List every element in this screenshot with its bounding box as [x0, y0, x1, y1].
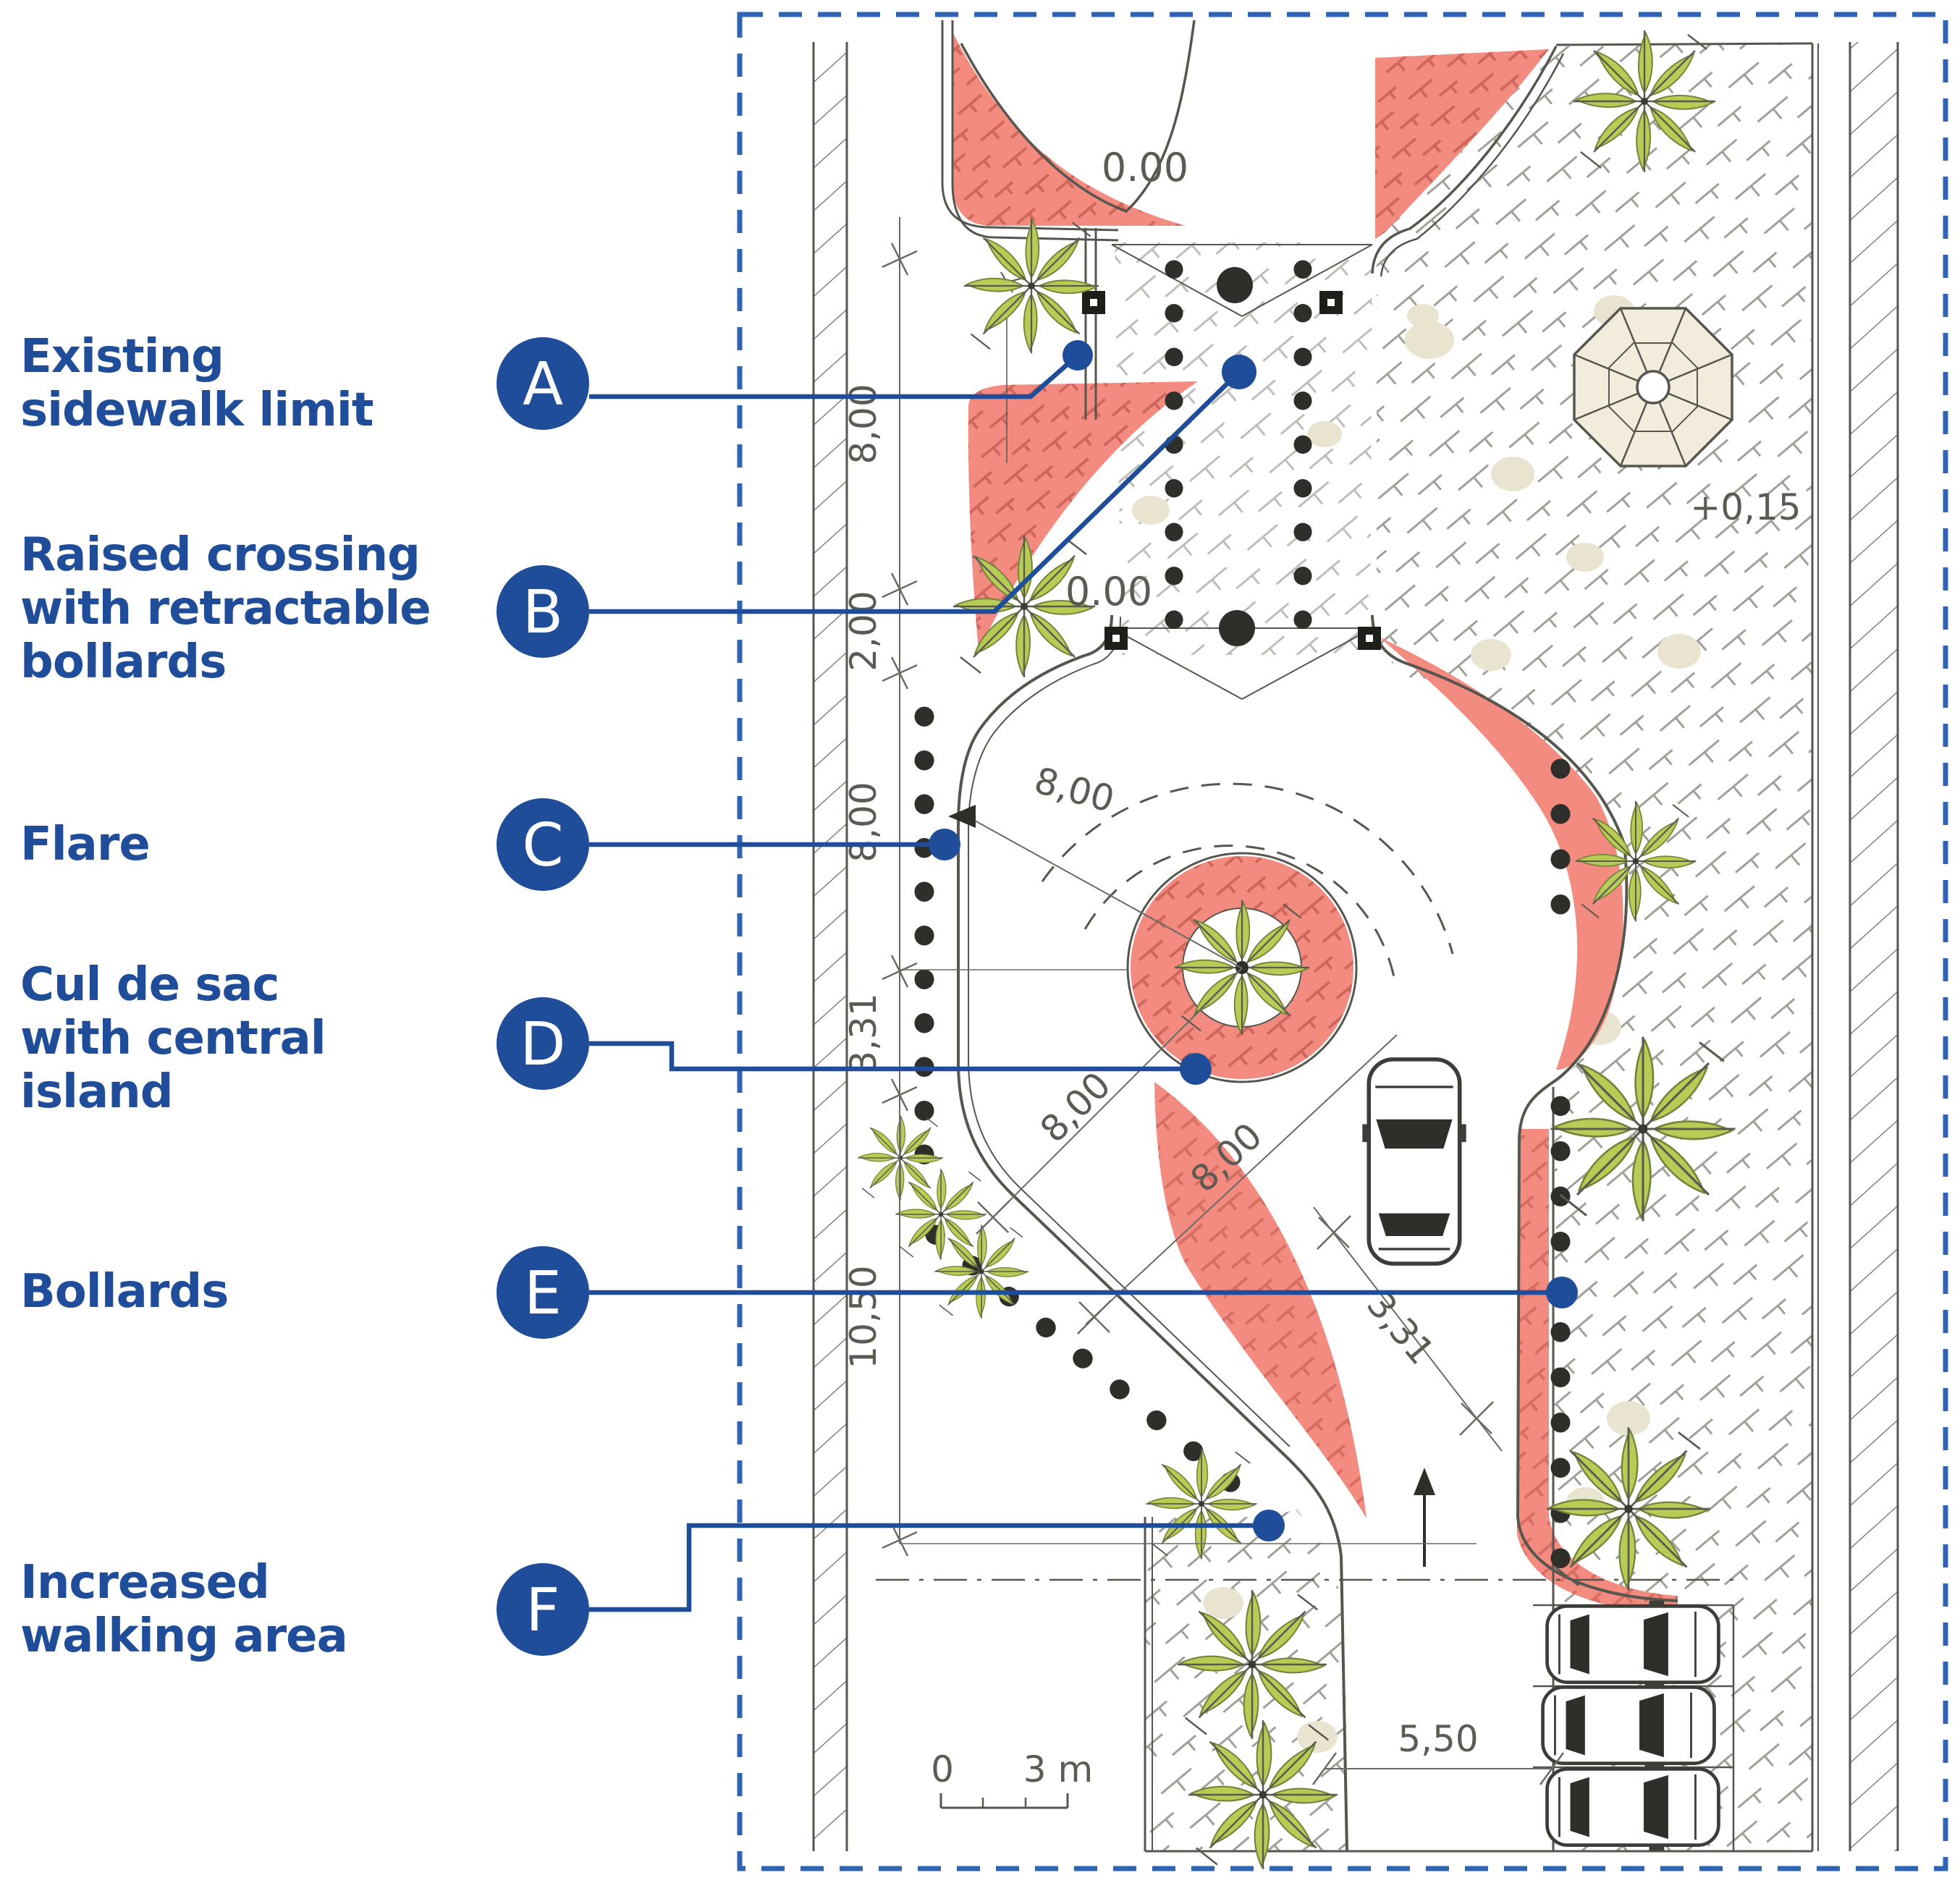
site-plan: 0.00 0.00 +0,15 8,00 2,00 8,00 3,31 10,5…: [0, 0, 1960, 1891]
west-wall-hatch: [814, 42, 847, 1851]
tree-icon: [1188, 1720, 1338, 1869]
tree-icon: [1146, 1449, 1257, 1560]
badge-e: E: [497, 1246, 589, 1339]
scale-zero: 0: [931, 1748, 954, 1790]
leader-dot-d: [1180, 1053, 1212, 1085]
parked-car-icon: [1547, 1764, 1719, 1850]
dim-left-331: 3,31: [842, 993, 884, 1073]
svg-text:F: F: [525, 1576, 559, 1645]
badge-b: B: [497, 565, 589, 658]
figure-canvas: Existing sidewalk limit Raised crossing …: [0, 0, 1960, 1891]
dim-parking-length: 5,50: [1398, 1718, 1478, 1760]
leader-dot-f: [1253, 1510, 1285, 1541]
parked-car-icon: [1547, 1601, 1719, 1688]
leader-dot-a: [1063, 340, 1093, 371]
large-bollard-bottom: [1219, 610, 1255, 646]
tree-icon: [1547, 1427, 1710, 1590]
dim-left-2: 2,00: [842, 591, 884, 671]
dim-left-1050: 10,50: [842, 1265, 884, 1368]
tree-icon: [895, 1169, 986, 1259]
svg-text:E: E: [524, 1259, 562, 1328]
parked-car-icon: [1543, 1682, 1715, 1769]
tree-icon: [1574, 30, 1715, 172]
svg-text:A: A: [523, 350, 563, 419]
badge-c: C: [497, 798, 589, 891]
badge-f: F: [497, 1563, 589, 1656]
svg-text:D: D: [520, 1010, 565, 1079]
svg-text:B: B: [523, 578, 563, 647]
badge-a: A: [497, 337, 589, 430]
tree-icon: [964, 219, 1099, 353]
leader-dot-e: [1546, 1277, 1578, 1308]
svg-text:C: C: [522, 811, 563, 880]
east-wall-hatch: [1850, 42, 1898, 1851]
tree-icon: [1576, 801, 1697, 922]
leader-dot-c: [929, 829, 960, 860]
annotation-badges: A B C D E F: [497, 337, 589, 1656]
level-top-street: 0.00: [1102, 145, 1188, 190]
level-right-sidewalk: +0,15: [1690, 486, 1801, 528]
large-bollard-top: [1217, 267, 1253, 303]
tree-icon: [934, 1224, 1028, 1318]
tree-icon: [1551, 1037, 1736, 1222]
leader-dot-b: [1222, 355, 1256, 389]
level-cul-de-sac: 0.00: [1065, 569, 1152, 614]
scale-max: 3 m: [1023, 1748, 1093, 1790]
gazebo-icon: [1574, 308, 1732, 466]
badge-d: D: [497, 997, 589, 1090]
car-icon: [1362, 1059, 1466, 1264]
tree-icon: [1178, 1590, 1327, 1739]
dim-left-8b: 8,00: [842, 782, 884, 862]
